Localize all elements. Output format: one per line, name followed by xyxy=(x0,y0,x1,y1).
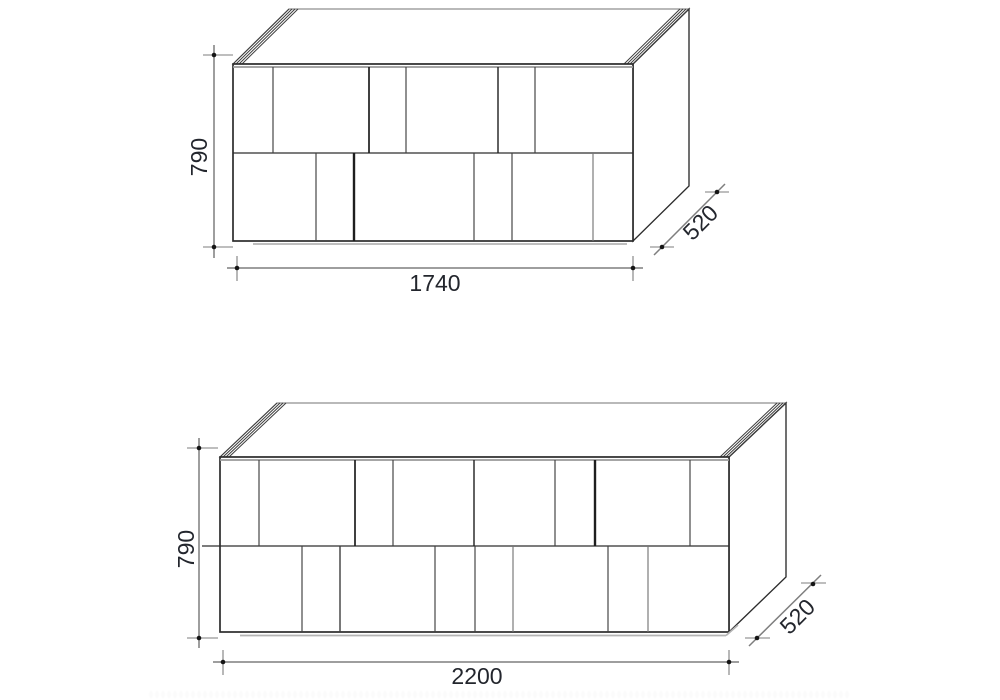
dimension-drawing-canvas: 790 1740 520 xyxy=(0,0,1000,700)
height-dimension-label: 790 xyxy=(186,138,212,176)
drawing-sideboard-2200: 790 2200 520 xyxy=(173,403,826,689)
dimension-height: 790 xyxy=(186,45,233,258)
depth-dimension-label: 520 xyxy=(775,594,821,640)
cropped-text-remnant xyxy=(150,691,850,698)
depth-dimension-label: 520 xyxy=(678,200,724,246)
dimension-width: 2200 xyxy=(213,650,739,689)
dimension-height: 790 xyxy=(173,438,218,648)
height-dimension-label: 790 xyxy=(173,530,199,568)
width-dimension-label: 1740 xyxy=(409,270,460,296)
top-panel xyxy=(220,403,786,457)
top-panel xyxy=(233,9,689,64)
drawing-sideboard-1740: 790 1740 520 xyxy=(186,9,729,296)
drawing-sheet: 790 1740 520 xyxy=(0,0,1000,700)
dimension-width: 1740 xyxy=(227,256,643,296)
width-dimension-label: 2200 xyxy=(451,663,502,689)
